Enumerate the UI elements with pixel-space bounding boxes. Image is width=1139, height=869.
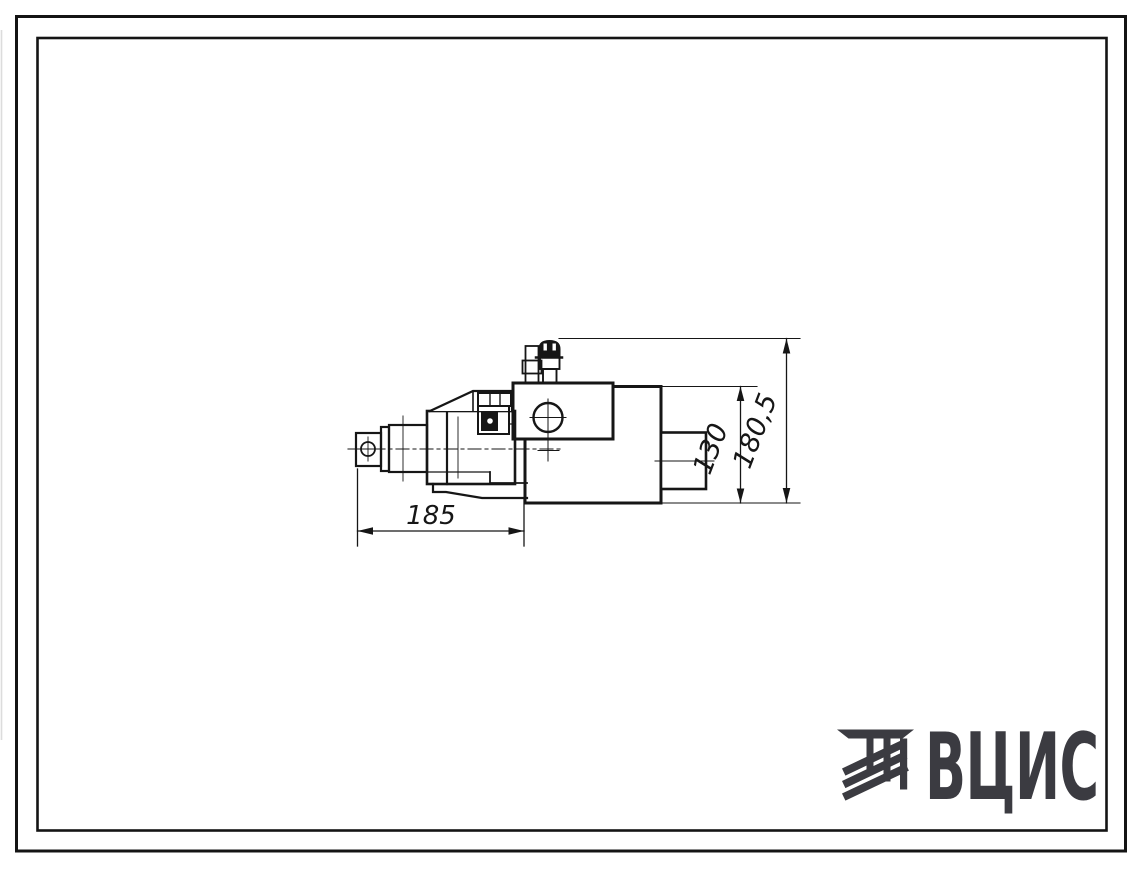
electromagnet-assembly [356,391,527,498]
arrowhead [737,387,745,402]
drawing-sheet: 185 130 180,5 В [0,0,1139,869]
dimension-label-180-5: 180,5 [727,389,784,472]
dimension-185: 185 [358,469,525,546]
vcis-logo-emblem-icon [837,730,914,801]
top-fitting [523,341,563,384]
arrowhead [737,489,745,504]
bottom-bracket [433,484,527,498]
arrowhead [509,527,525,535]
dimension-label-185: 185 [406,501,456,531]
vcis-logo: ВЦИС [837,712,1099,821]
arrowhead [783,339,791,354]
vcis-logo-text: ВЦИС [925,712,1099,821]
technical-drawing: 185 130 180,5 [348,339,800,547]
fitting-cap [539,341,560,358]
dimension-label-130: 130 [687,419,734,478]
arrowhead [358,527,374,535]
arrowhead [783,488,791,503]
